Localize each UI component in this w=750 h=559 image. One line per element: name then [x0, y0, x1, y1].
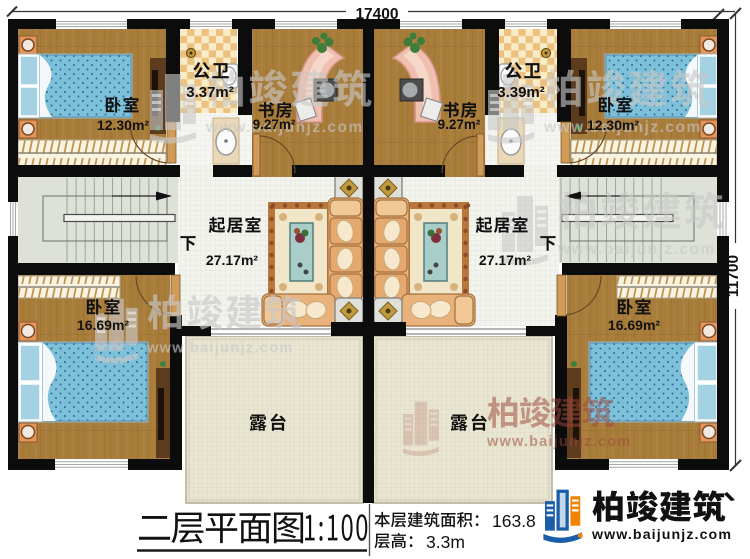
- svg-text:27.17m²: 27.17m²: [479, 252, 531, 268]
- svg-text:www.baijunjz.com: www.baijunjz.com: [486, 434, 631, 450]
- svg-text:3.3m: 3.3m: [426, 532, 465, 552]
- svg-text:27.17m²: 27.17m²: [206, 252, 258, 268]
- svg-text:3.37m²: 3.37m²: [186, 84, 234, 101]
- svg-text:12.30m²: 12.30m²: [97, 117, 149, 133]
- svg-text:9.27m²: 9.27m²: [253, 117, 296, 132]
- svg-text:16.69m²: 16.69m²: [608, 317, 660, 333]
- svg-text:163.8: 163.8: [492, 511, 536, 531]
- svg-text:9.27m²: 9.27m²: [438, 117, 481, 132]
- svg-text:3.39m²: 3.39m²: [497, 84, 545, 101]
- svg-text:www.baijunjz.com: www.baijunjz.com: [591, 527, 732, 543]
- svg-text:12.30m²: 12.30m²: [587, 117, 639, 133]
- svg-text:16.69m²: 16.69m²: [77, 317, 129, 333]
